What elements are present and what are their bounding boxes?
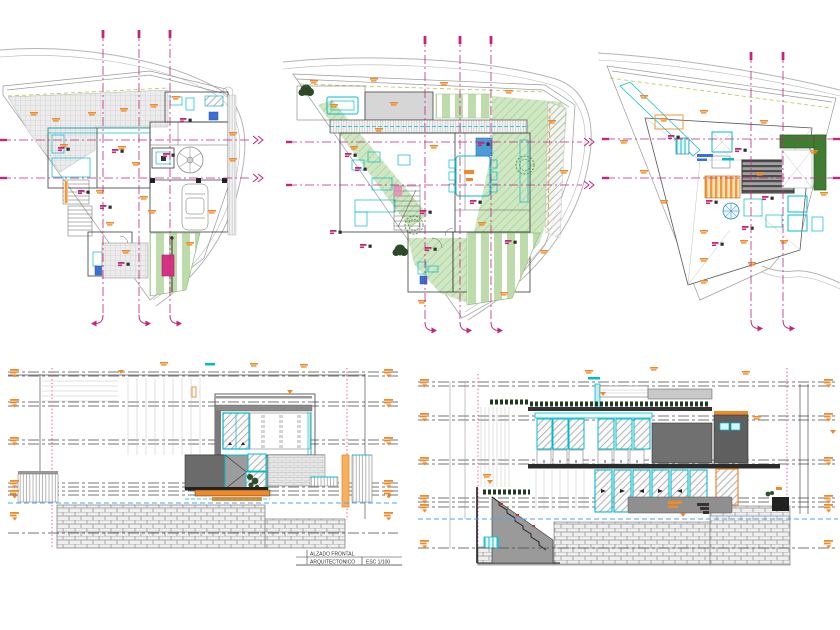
drawing-sheet: ALZADO FRONTAL ARQUITECTONICO ESC 1/100 xyxy=(0,0,840,630)
roof-structures xyxy=(620,82,826,285)
building-massing xyxy=(18,370,372,507)
floor-plan-ground-level xyxy=(283,36,594,334)
retaining-wall-hatch xyxy=(8,505,398,548)
elevation-scale: ESC 1/100 xyxy=(366,560,390,566)
title-block: ALZADO FRONTAL ARQUITECTONICO ESC 1/100 xyxy=(296,550,402,566)
side-elevation xyxy=(418,367,838,565)
roof-plan xyxy=(598,52,840,332)
cad-drawing: ALZADO FRONTAL ARQUITECTONICO ESC 1/100 xyxy=(0,0,840,630)
building-massing xyxy=(483,384,780,512)
planter-boxes xyxy=(537,450,644,464)
driveway-stripes xyxy=(102,233,200,296)
plan1-grid-axes xyxy=(0,30,263,327)
front-elevation: ALZADO FRONTAL ARQUITECTONICO ESC 1/100 xyxy=(8,362,402,566)
paved-terrace-hatch xyxy=(8,90,168,172)
floor-plan-lower-level xyxy=(0,30,263,327)
elevation-discipline: ARQUITECTONICO xyxy=(310,560,355,566)
elevation-title: ALZADO FRONTAL xyxy=(310,552,355,558)
